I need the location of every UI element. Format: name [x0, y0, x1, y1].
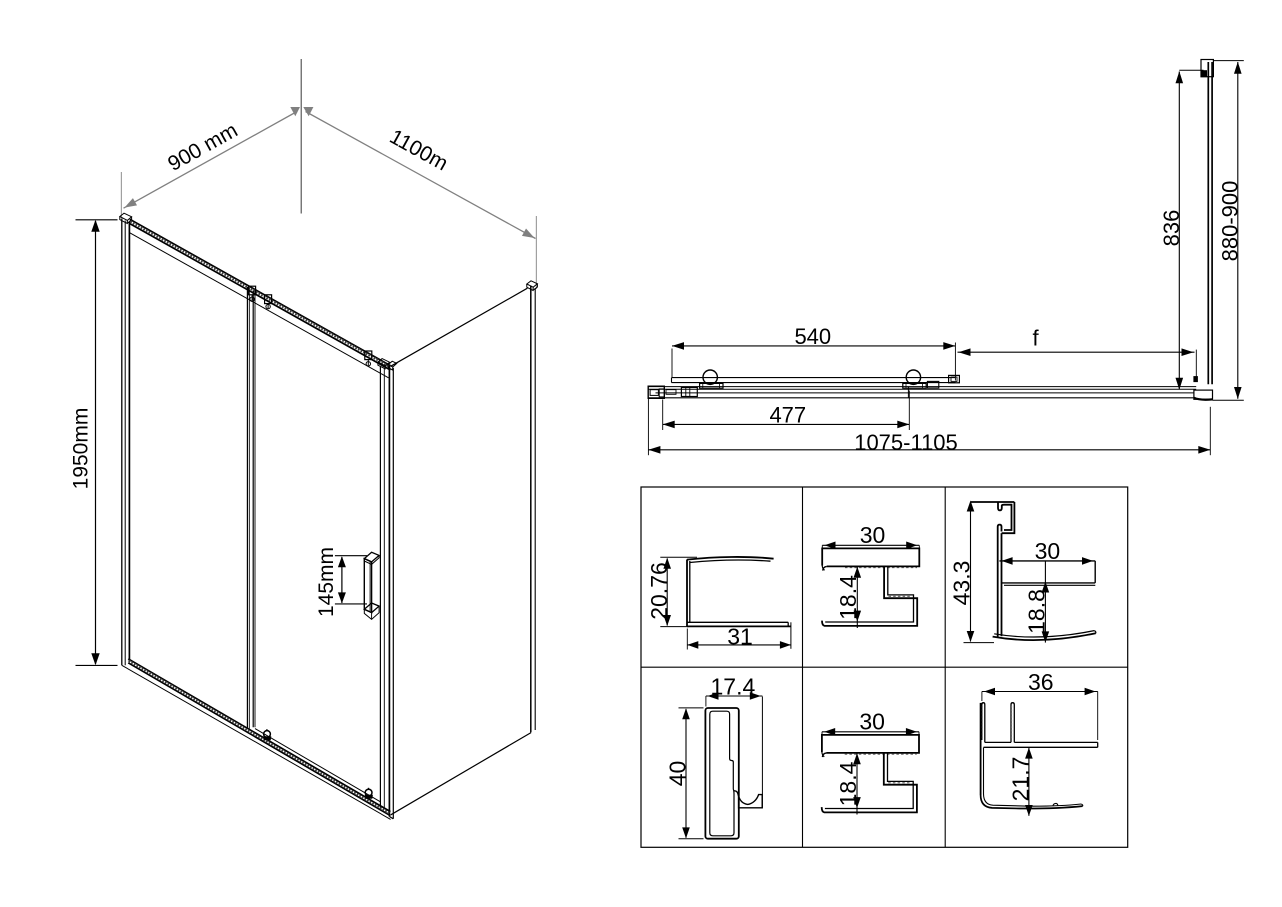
svg-text:477: 477 — [769, 403, 806, 428]
svg-text:30: 30 — [1035, 538, 1061, 564]
svg-text:1100m: 1100m — [386, 125, 452, 175]
svg-text:f: f — [1032, 326, 1039, 351]
svg-text:43.3: 43.3 — [948, 561, 974, 606]
svg-text:30: 30 — [859, 709, 885, 735]
svg-text:145mm: 145mm — [315, 547, 338, 617]
svg-text:836: 836 — [1159, 210, 1184, 247]
svg-text:18.8: 18.8 — [1024, 589, 1050, 634]
svg-text:540: 540 — [794, 324, 831, 349]
svg-text:17.4: 17.4 — [711, 673, 756, 699]
svg-text:18.4: 18.4 — [835, 761, 861, 806]
svg-text:40: 40 — [665, 761, 691, 787]
svg-text:1075-1105: 1075-1105 — [854, 430, 958, 455]
svg-text:1950mm: 1950mm — [70, 408, 93, 490]
svg-text:36: 36 — [1028, 669, 1054, 695]
svg-text:30: 30 — [860, 522, 886, 548]
svg-text:900 mm: 900 mm — [164, 119, 241, 176]
svg-text:880-900: 880-900 — [1217, 181, 1242, 262]
svg-text:18.4: 18.4 — [835, 575, 861, 620]
svg-text:20.76: 20.76 — [646, 562, 672, 620]
svg-text:21.7: 21.7 — [1007, 757, 1033, 802]
svg-text:31: 31 — [727, 624, 753, 650]
